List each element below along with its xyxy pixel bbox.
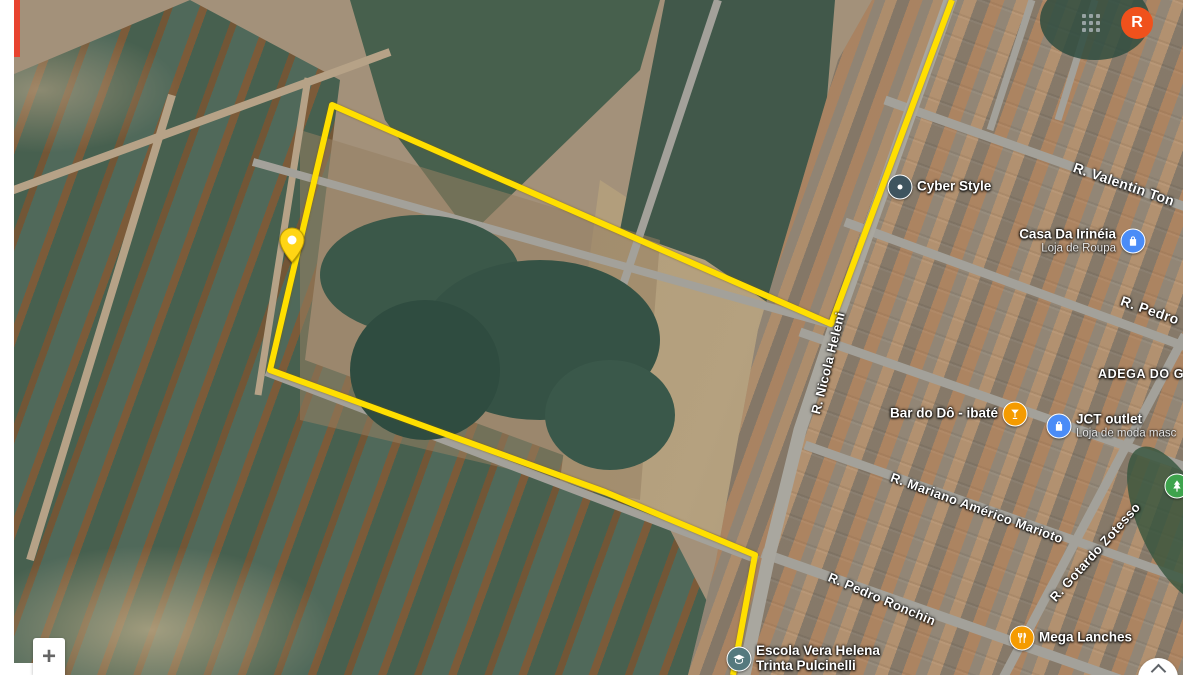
right-white-margin: [1183, 0, 1200, 675]
poi-name: Mega Lanches: [1039, 631, 1132, 646]
red-edge-bar: [14, 0, 20, 57]
poi-name: Cyber Style: [917, 180, 991, 195]
poi-name: Escola Vera Helena: [756, 644, 880, 659]
poi-subtitle: Loja de moda masc: [1076, 427, 1176, 440]
bag-icon[interactable]: [1047, 414, 1072, 439]
dot-icon[interactable]: [888, 175, 913, 200]
bag-icon[interactable]: [1121, 229, 1146, 254]
account-avatar[interactable]: R: [1121, 7, 1153, 39]
google-apps-grid-icon[interactable]: [1082, 14, 1101, 33]
cocktail-icon[interactable]: [1003, 402, 1028, 427]
poi-name-2: Trinta Pulcinelli: [756, 659, 880, 674]
poi-name: JCT outlet: [1076, 412, 1176, 427]
map-canvas[interactable]: R. Valentin TonR. PedroR. Nicola HeleniA…: [0, 0, 1200, 675]
maps-satellite-page: R. Valentin TonR. PedroR. Nicola HeleniA…: [0, 0, 1200, 675]
poi-subtitle: Loja de Roupa: [1019, 242, 1116, 255]
poi-name: Casa Da Irinéia: [1019, 227, 1116, 242]
school-icon[interactable]: [727, 647, 752, 672]
zoom-in-button[interactable]: +: [33, 638, 65, 675]
chevron-up-icon: [1151, 664, 1167, 675]
left-white-margin: [0, 0, 14, 675]
bottom-left-white-corner: [0, 663, 34, 675]
poi-name: Bar do Dô - ibaté: [890, 407, 998, 422]
restaurant-icon[interactable]: [1010, 626, 1035, 651]
poi-layer: Cyber Style Casa Da Irinéia Loja de Roup…: [0, 0, 1200, 675]
